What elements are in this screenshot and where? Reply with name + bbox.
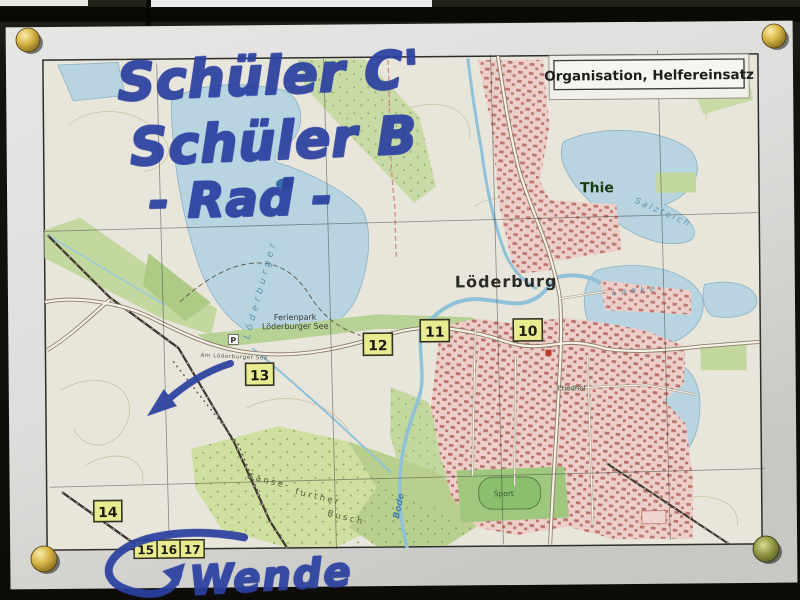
waypoint-marker-14: 14 [94,500,122,521]
map-label-box [642,511,666,524]
legend-title: Organisation, Helfereinsatz [544,67,754,85]
svg-text:14: 14 [98,505,118,521]
label-thie: Thie [580,180,614,196]
pin-bottom-right [753,536,779,562]
parking-symbol: P [228,334,238,345]
pin-top-right [762,24,786,48]
label-ferienpark-2: Löderburger See [262,322,329,332]
waypoint-marker-10: 10 [513,319,542,341]
label-sport: Sport [494,489,514,498]
svg-text:16: 16 [160,543,177,557]
label-ferienpark-1: Ferienpark [274,313,317,322]
landmark-symbol [545,350,551,356]
svg-text:12: 12 [368,338,388,354]
waypoint-marker-11: 11 [420,320,449,342]
waypoint-marker-13: 13 [246,363,274,385]
handwriting-line2: Schüler B [129,106,419,178]
board-groove [0,7,800,22]
parking-letter: P [230,336,236,345]
pin-top-left [16,28,40,52]
handwriting-line3: - Rad - [148,169,333,230]
scene: P Löderburg Thie Ferienpark Löderburger … [0,0,800,600]
waypoint-marker-17: 17 [180,540,204,558]
label-loederburg: Löderburg [455,272,558,292]
svg-text:11: 11 [425,325,445,341]
label-friedhof: Friedhof [558,384,587,392]
pin-bottom-left [31,546,57,572]
waypoint-marker-12: 12 [363,333,392,355]
sheet-above-center-edge [151,0,432,7]
svg-text:13: 13 [250,368,270,384]
handwriting-wende: Wende [188,549,353,600]
photo-of-pinned-map: P Löderburg Thie Ferienpark Löderburger … [0,0,800,600]
legend: Organisation, Helfereinsatz [544,54,754,100]
waypoint-marker-16: 16 [157,540,180,558]
map-sheet: P Löderburg Thie Ferienpark Löderburger … [6,21,798,600]
svg-text:17: 17 [184,543,201,557]
svg-text:10: 10 [518,324,538,340]
sheet-above-left-edge [0,0,88,6]
